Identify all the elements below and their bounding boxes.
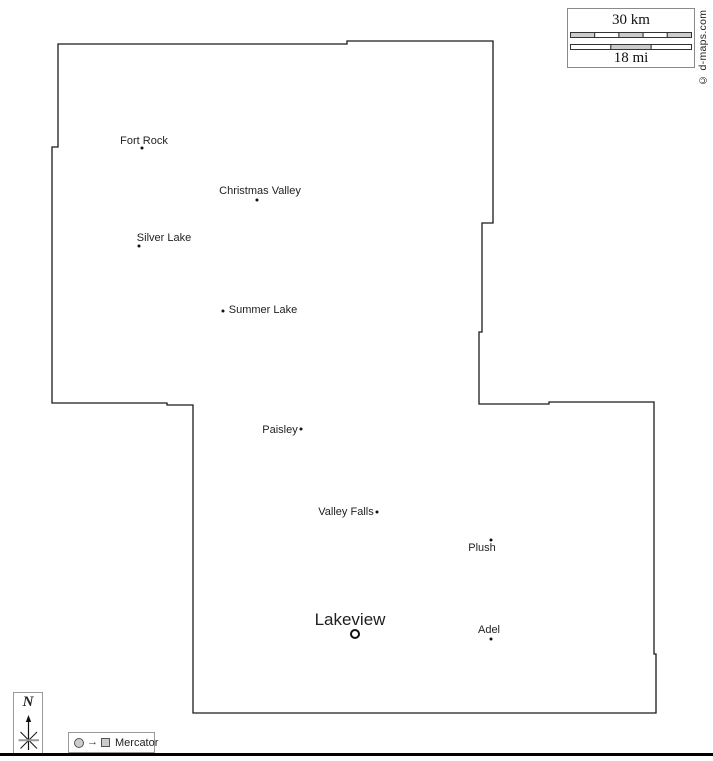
sphere-icon: [74, 738, 84, 748]
city-label-adel: Adel: [478, 624, 500, 636]
city-label-silver-lake: Silver Lake: [137, 232, 191, 244]
city-label-christmas-valley: Christmas Valley: [219, 185, 301, 197]
bottom-border-line: [0, 753, 713, 756]
copyright-text: © d-maps.com: [697, 8, 709, 86]
county-boundary-layer: [0, 0, 713, 761]
city-marker-silver-lake: [138, 245, 141, 248]
city-label-plush: Plush: [468, 542, 496, 554]
city-marker-christmas-valley: [256, 199, 259, 202]
city-marker-lakeview: [350, 629, 360, 639]
city-label-paisley: Paisley: [262, 424, 297, 436]
arrow-right-icon: →: [87, 737, 98, 748]
scale-mi-label: 18 mi: [568, 50, 694, 67]
city-marker-adel: [490, 638, 493, 641]
projection-legend-box: → Mercator: [68, 732, 155, 753]
city-label-summer-lake: Summer Lake: [229, 304, 297, 316]
compass-box: N: [13, 692, 43, 755]
city-marker-paisley: [300, 428, 303, 431]
city-marker-valley-falls: [376, 511, 379, 514]
city-label-valley-falls: Valley Falls: [318, 506, 373, 518]
scale-bar-box: 30 km 18 mi: [567, 8, 695, 68]
map-canvas: Fort RockChristmas ValleySilver LakeSumm…: [0, 0, 713, 761]
city-marker-summer-lake: [222, 310, 225, 313]
city-label-lakeview: Lakeview: [315, 610, 386, 630]
city-label-fort-rock: Fort Rock: [120, 135, 168, 147]
flat-map-icon: [101, 738, 110, 747]
projection-label: Mercator: [115, 737, 158, 749]
compass-rose-icon: [14, 693, 42, 754]
